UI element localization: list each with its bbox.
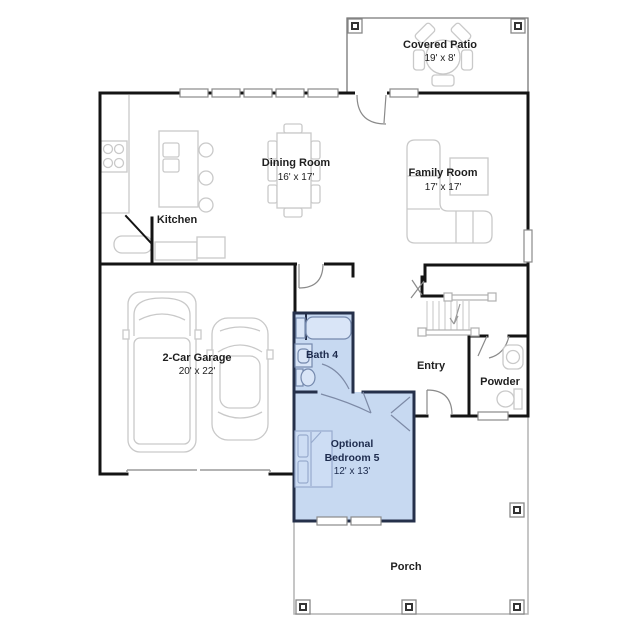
room-powder: Powder	[480, 345, 523, 409]
floor-plan: Covered Patio 19' x 8' Porch	[0, 0, 640, 640]
room-family: Family Room 17' x 17'	[407, 140, 492, 243]
window	[244, 89, 272, 97]
bedroom5-dims: 12' x 13'	[334, 466, 371, 477]
family-room-dims: 17' x 17'	[425, 182, 462, 193]
entry-label: Entry	[417, 360, 446, 372]
porch-post	[402, 600, 416, 614]
garage-door	[127, 470, 270, 473]
porch-post	[510, 503, 524, 517]
covered-patio-dims: 19' x 8'	[424, 53, 455, 64]
window	[524, 230, 532, 262]
linen-shelf-icon	[296, 318, 305, 338]
bedroom5-label-line2: Bedroom 5	[325, 452, 380, 464]
stairs-icon	[418, 293, 496, 336]
bathtub-icon	[306, 317, 351, 339]
covered-patio-label: Covered Patio	[403, 39, 477, 51]
window	[212, 89, 240, 97]
garage-dims: 20' x 22'	[179, 366, 216, 377]
room-entry: Entry	[417, 360, 446, 372]
window	[308, 89, 338, 97]
dining-room-dims: 16' x 17'	[278, 172, 315, 183]
powder-label: Powder	[480, 376, 520, 388]
window	[180, 89, 208, 97]
dining-table-icon	[268, 124, 320, 217]
car-icon	[207, 318, 273, 440]
window	[390, 89, 418, 97]
stove-icon	[101, 141, 127, 172]
hall-door-opening	[297, 261, 324, 268]
kitchen-island-icon	[159, 131, 198, 207]
bedroom5-label-line1: Optional	[331, 438, 374, 450]
patio-door-swing	[357, 95, 386, 124]
room-covered-patio: Covered Patio 19' x 8'	[347, 18, 528, 93]
porch-post	[510, 600, 524, 614]
powder-toilet-icon	[497, 389, 522, 409]
patio-post	[511, 19, 525, 33]
window	[276, 89, 304, 97]
island-stool-icon	[199, 143, 213, 212]
bath4-label: Bath 4	[306, 349, 338, 361]
room-kitchen: Kitchen	[101, 95, 225, 260]
bath-toilet-icon	[296, 369, 315, 386]
patio-post	[348, 19, 362, 33]
window	[317, 517, 347, 525]
room-garage: 2-Car Garage 20' x 22'	[123, 292, 273, 452]
powder-sink-icon	[503, 345, 523, 369]
front-door-swing	[427, 390, 452, 415]
garage-label: 2-Car Garage	[162, 352, 231, 364]
window	[351, 517, 381, 525]
window	[478, 412, 508, 420]
room-dining: Dining Room 16' x 17'	[262, 124, 331, 217]
patio-door-opening	[355, 88, 387, 98]
kitchen-label: Kitchen	[157, 214, 198, 226]
porch-post	[296, 600, 310, 614]
dining-room-label: Dining Room	[262, 157, 331, 169]
porch-label: Porch	[390, 561, 421, 573]
family-room-label: Family Room	[408, 167, 477, 179]
kitchen-counter-icon	[114, 236, 225, 260]
